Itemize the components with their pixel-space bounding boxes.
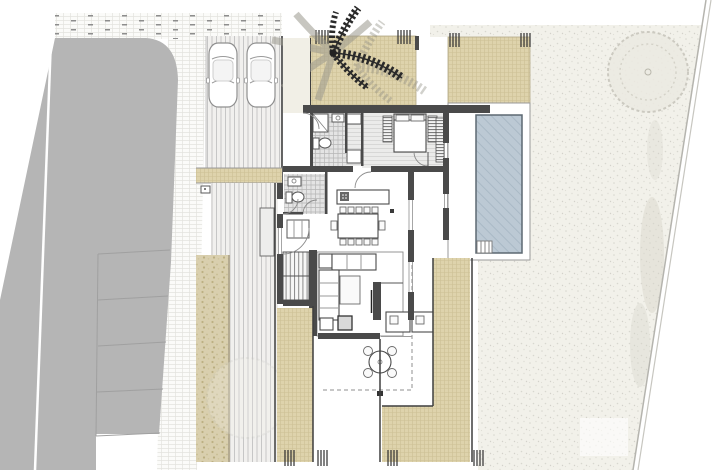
terrace-chair — [388, 347, 397, 356]
terrace-chair — [388, 369, 397, 378]
dining-table — [338, 214, 378, 238]
car — [245, 43, 278, 107]
tv-wall — [373, 282, 381, 320]
pool-area — [448, 103, 530, 260]
wardrobe — [436, 118, 444, 162]
palm-trunk — [330, 50, 337, 57]
east-wall-pier — [408, 230, 414, 262]
wc-wall — [325, 172, 328, 214]
toilet-tank — [313, 138, 319, 149]
pool-side-pier — [443, 208, 449, 240]
wc-sink — [288, 177, 301, 186]
island-sink — [340, 192, 349, 201]
driveway — [206, 36, 282, 183]
gravel-light-patch — [580, 418, 628, 456]
north-wall — [303, 105, 490, 113]
stairs — [283, 252, 309, 300]
toilet — [319, 138, 331, 148]
living-south-wall — [318, 333, 380, 339]
sofa — [332, 254, 376, 270]
planter-box — [260, 208, 274, 256]
pool-side-pier — [443, 107, 449, 143]
nightstand — [383, 116, 392, 142]
sink — [332, 114, 344, 122]
sidewalk-dash-texture — [55, 13, 282, 39]
wc-toilet-tank — [286, 192, 292, 203]
hedge-blob — [630, 303, 650, 387]
pillow — [411, 115, 424, 121]
side-table — [320, 318, 333, 330]
hedge-blob — [647, 120, 663, 180]
terrace-chair — [364, 369, 373, 378]
car — [207, 43, 240, 107]
entry-path — [196, 168, 282, 183]
side-table-dark — [338, 316, 352, 330]
coffee-table — [340, 276, 360, 304]
storage-closet — [287, 220, 309, 238]
garden-strip-west — [277, 308, 313, 462]
wall-stub — [415, 36, 419, 50]
sofa-chaise — [319, 270, 339, 320]
pillow — [396, 115, 409, 121]
floor-marker — [390, 209, 394, 213]
pool-court-beige — [448, 37, 530, 103]
hall-cabinet — [347, 150, 361, 163]
east-wall-pier — [408, 292, 414, 320]
east-wall-pier — [408, 172, 414, 200]
pool-side-pier — [443, 158, 449, 194]
hall-cabinet — [347, 114, 361, 124]
armchair — [319, 254, 332, 268]
tree-canopy-northeast — [608, 32, 688, 112]
site-plan-drawing — [0, 0, 726, 470]
swimming-pool — [476, 115, 522, 253]
floor-plan-canvas — [0, 0, 726, 470]
pool-ladder — [477, 241, 492, 253]
terrace-chair — [364, 347, 373, 356]
